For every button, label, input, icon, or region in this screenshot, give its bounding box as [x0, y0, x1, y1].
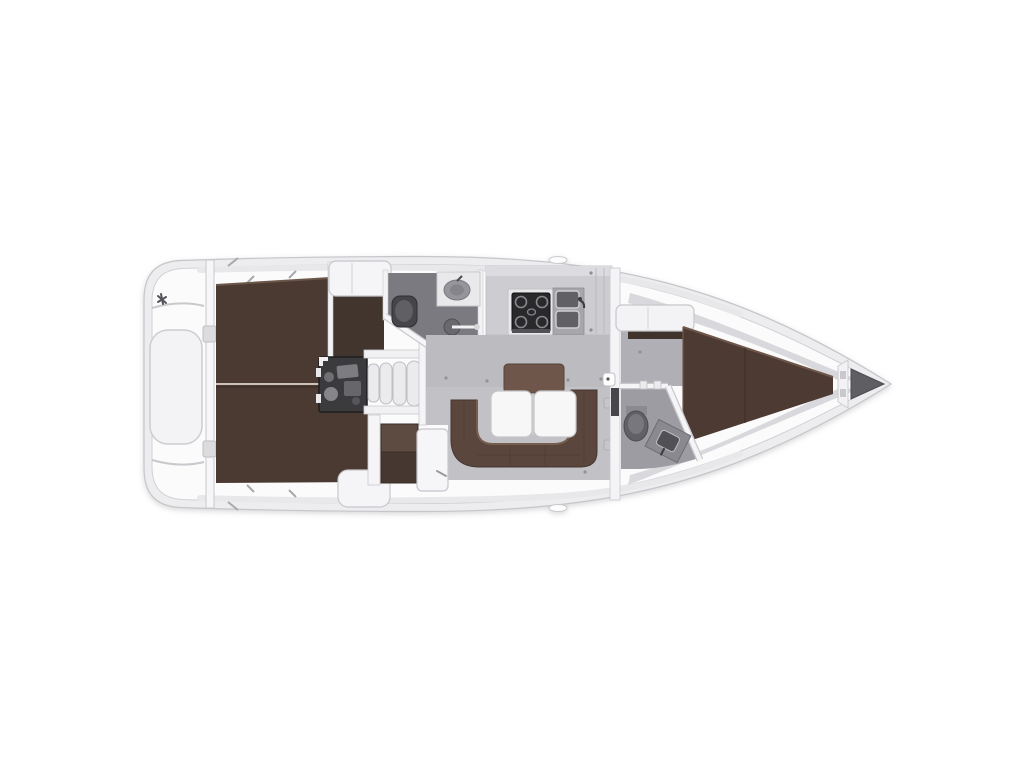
aft-heads-shower-mount	[474, 324, 480, 330]
galley-latch-top	[589, 271, 592, 274]
engine-part	[344, 381, 361, 396]
galley-counter-top-band	[486, 266, 612, 276]
transom-hinge-bottom	[203, 441, 216, 457]
engine-mount-bottom	[316, 394, 321, 403]
engine-pulley-small	[324, 372, 334, 382]
sink-basin-lower	[556, 311, 579, 328]
nav-seat-back	[381, 424, 418, 454]
aft-heads-toilet-lid	[395, 300, 413, 322]
yacht-floor-plan-canvas	[0, 0, 1024, 768]
step-1	[368, 364, 379, 402]
forward-toilet-lid	[628, 414, 644, 434]
galley-latch-bottom	[589, 328, 592, 331]
nav-seat	[381, 452, 418, 483]
step-2	[380, 363, 392, 404]
aft-heads-washbasin-drain	[450, 285, 464, 296]
stern-hatch	[150, 330, 202, 444]
chart-table	[417, 429, 448, 491]
engine-pulley-large	[324, 387, 338, 401]
folding-table-right-leaf	[534, 391, 576, 437]
folding-table-left-leaf	[491, 391, 532, 437]
yacht-floor-plan	[0, 0, 1024, 768]
forward-floor-screw	[638, 350, 641, 353]
aft-heads-left-wall	[383, 270, 388, 320]
forward-heads-door-tab-2	[654, 381, 661, 389]
stove-knob-rail	[512, 329, 550, 333]
cleat-notch-bottom	[549, 505, 567, 512]
engine-cap	[352, 397, 360, 405]
aft-cabin-entry-floor	[331, 296, 384, 357]
forward-heads-door-tab-1	[640, 381, 647, 389]
companionway-frame-top	[364, 350, 421, 358]
salon	[426, 335, 613, 480]
anchor-locker-wall	[838, 360, 848, 408]
sink-basin-upper	[556, 291, 579, 308]
cleat-notch-top	[549, 257, 567, 264]
companionway-frame-bottom	[364, 406, 421, 414]
galley	[486, 266, 612, 335]
transom-hinge-top	[203, 326, 216, 342]
sink-faucet-base	[578, 297, 582, 301]
nav-partition-wall	[368, 415, 380, 485]
backrest-cushion	[504, 364, 564, 393]
anchor-wall-fitting-bottom	[840, 389, 846, 397]
forward-cabin-doorway	[611, 388, 619, 416]
wardrobe-locker	[329, 261, 391, 296]
anchor-wall-fitting-top	[840, 371, 846, 379]
aft-bulkhead-wall	[206, 260, 214, 508]
engine-mount-top	[316, 368, 321, 377]
door-latch-knob	[606, 377, 609, 380]
engine-compartment	[316, 357, 367, 412]
step-3	[393, 362, 406, 405]
aft-cabin-port-berth	[216, 278, 330, 384]
engine-block	[336, 364, 358, 379]
